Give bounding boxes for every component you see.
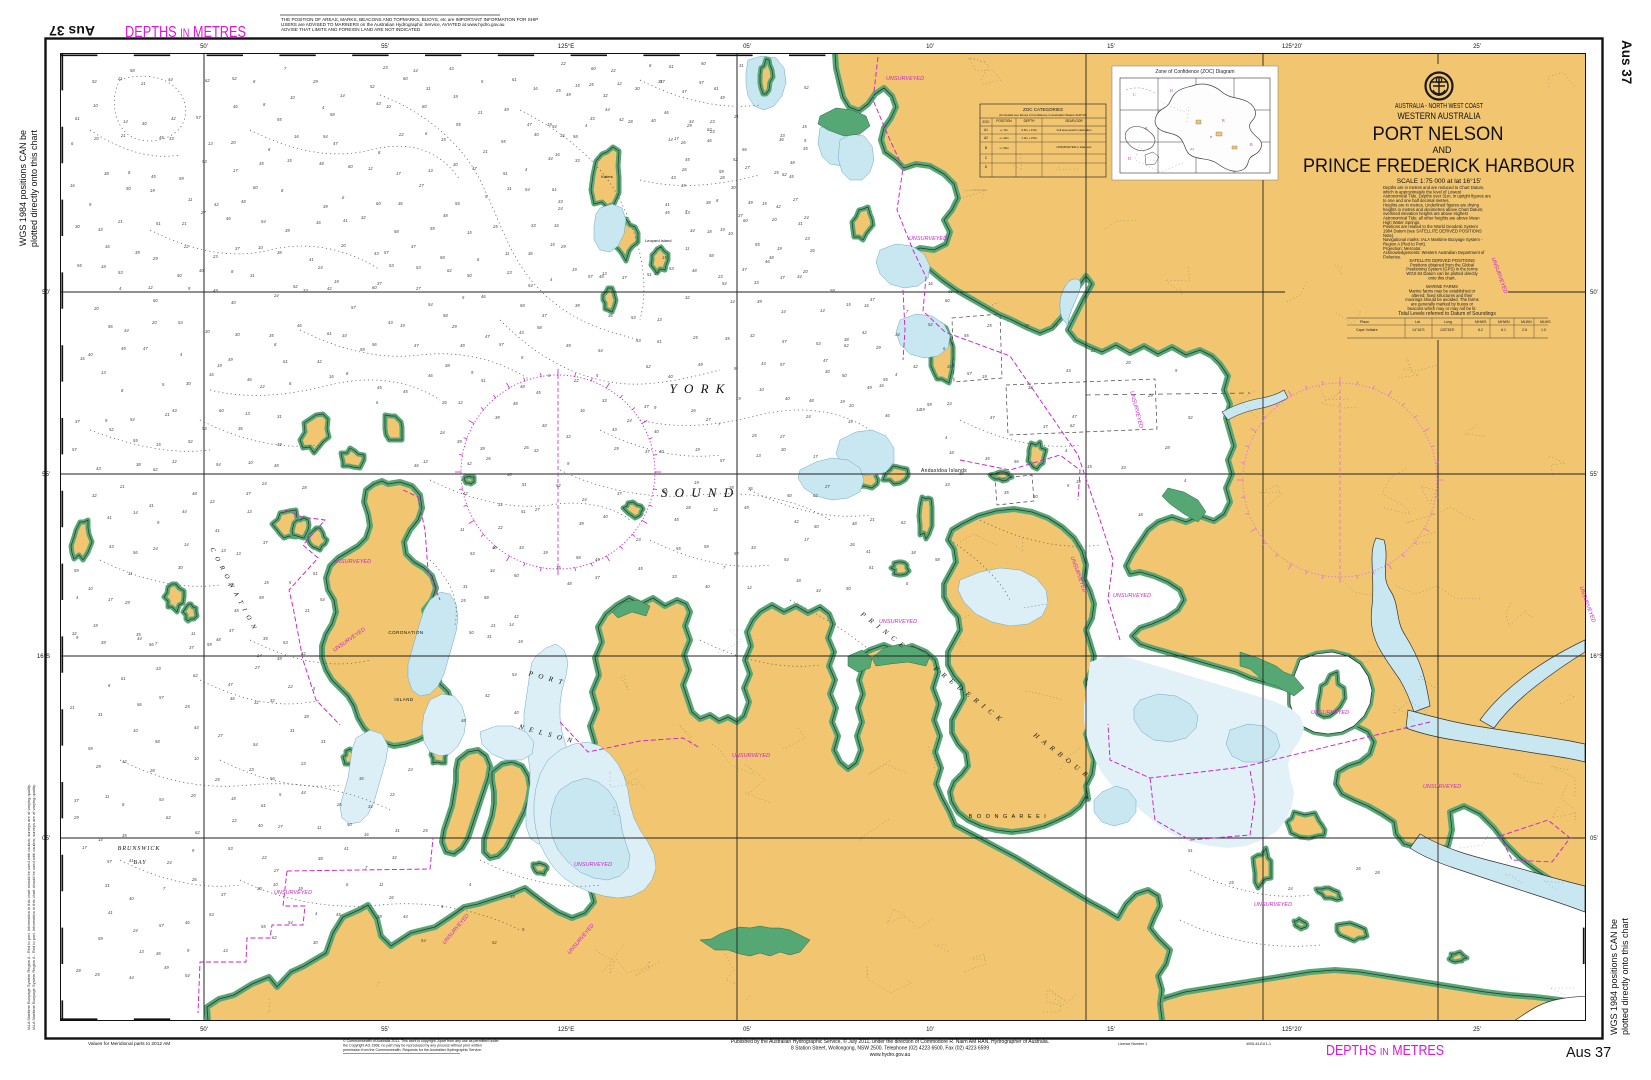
svg-text:38: 38	[1028, 385, 1033, 390]
svg-text:2.6: 2.6	[1522, 328, 1527, 332]
svg-text:46: 46	[226, 216, 231, 221]
svg-text:Aus 37: Aus 37	[1566, 1045, 1611, 1061]
svg-text:19: 19	[572, 267, 577, 272]
svg-text:22: 22	[560, 61, 566, 66]
svg-text:50: 50	[514, 573, 519, 578]
svg-text:1984 Datum (see SATELLITE DERI: 1984 Datum (see SATELLITE DERIVED POSITI…	[1383, 229, 1482, 234]
svg-text:11: 11	[188, 197, 192, 202]
svg-text:57: 57	[780, 362, 785, 367]
svg-text:22: 22	[259, 384, 265, 389]
svg-text:23: 23	[635, 537, 641, 542]
svg-text:20: 20	[151, 320, 157, 325]
svg-text:A2: A2	[1190, 147, 1195, 151]
svg-text:15: 15	[156, 442, 161, 447]
svg-text:50: 50	[347, 822, 352, 827]
svg-text:UNSURVEYED: UNSURVEYED	[1254, 902, 1292, 908]
svg-text:52: 52	[92, 79, 97, 84]
svg-text:34: 34	[124, 328, 129, 333]
svg-text:28: 28	[1374, 870, 1380, 875]
svg-text:13: 13	[223, 948, 228, 953]
svg-text:UNSURVEYED: UNSURVEYED	[886, 76, 924, 82]
svg-text:56: 56	[137, 702, 142, 707]
svg-text:58: 58	[130, 68, 135, 73]
svg-text:38: 38	[445, 363, 450, 368]
svg-text:50': 50'	[1590, 290, 1598, 296]
svg-text:12: 12	[172, 459, 177, 464]
svg-text:54: 54	[130, 417, 135, 422]
svg-text:30: 30	[186, 381, 191, 386]
svg-text:33: 33	[156, 666, 161, 671]
svg-text:16: 16	[580, 408, 585, 413]
svg-text:ADVISE THAT LIMITS AND FOREIGN: ADVISE THAT LIMITS AND FOREIGN LAND ARE …	[281, 27, 421, 32]
svg-text:46: 46	[481, 294, 486, 299]
svg-text:05': 05'	[42, 836, 50, 842]
svg-text:31: 31	[739, 63, 744, 68]
svg-text:1.0: 1.0	[1541, 328, 1546, 332]
svg-text:62: 62	[153, 467, 158, 472]
svg-text:46: 46	[247, 377, 252, 382]
svg-text:24: 24	[132, 928, 138, 933]
svg-text:46: 46	[233, 104, 238, 109]
svg-text:27: 27	[824, 484, 830, 489]
svg-text:D: D	[1128, 156, 1131, 161]
svg-text:17: 17	[396, 171, 401, 176]
svg-text:58: 58	[484, 595, 489, 600]
svg-text:54: 54	[512, 672, 517, 677]
svg-text:49: 49	[744, 505, 749, 510]
svg-text:18: 18	[949, 450, 954, 455]
svg-text:12: 12	[458, 400, 463, 405]
svg-text:13: 13	[1076, 479, 1081, 484]
svg-text:22: 22	[398, 132, 404, 137]
svg-text:Zone of Confidence (ZOC) Diagr: Zone of Confidence (ZOC) Diagram	[1155, 69, 1234, 75]
svg-text:38: 38	[136, 462, 141, 467]
svg-text:B: B	[1250, 142, 1253, 147]
svg-text:41: 41	[215, 528, 220, 533]
svg-text:32: 32	[392, 855, 397, 860]
svg-text:54: 54	[784, 557, 789, 562]
svg-text:47: 47	[542, 313, 547, 318]
svg-text:24: 24	[439, 430, 445, 435]
svg-text:27: 27	[744, 165, 750, 170]
svg-text:15': 15'	[1107, 1027, 1115, 1033]
svg-text:62: 62	[1070, 423, 1075, 428]
svg-text:54: 54	[722, 281, 727, 286]
svg-text:31: 31	[463, 584, 468, 589]
svg-text:14: 14	[133, 510, 138, 515]
svg-text:16: 16	[560, 133, 565, 138]
svg-text:25': 25'	[1473, 1027, 1481, 1033]
svg-text:22: 22	[573, 378, 579, 383]
svg-text:26: 26	[690, 408, 696, 413]
svg-text:19: 19	[694, 480, 699, 485]
svg-text:15: 15	[846, 302, 851, 307]
svg-text:19: 19	[453, 94, 458, 99]
svg-text:36: 36	[359, 776, 364, 781]
svg-text:16: 16	[555, 152, 560, 157]
svg-text:53: 53	[816, 341, 821, 346]
svg-text:32: 32	[603, 93, 608, 98]
svg-text:62: 62	[646, 364, 651, 369]
svg-text:24: 24	[803, 215, 809, 220]
svg-text:34: 34	[548, 156, 553, 161]
svg-text:50: 50	[842, 373, 847, 378]
svg-text:18: 18	[1138, 512, 1143, 517]
svg-text:BAY: BAY	[133, 860, 146, 866]
svg-text:58: 58	[155, 739, 160, 744]
svg-text:32: 32	[361, 215, 366, 220]
svg-text:55: 55	[261, 924, 266, 929]
svg-text:50': 50'	[200, 44, 208, 50]
svg-text:18: 18	[231, 796, 236, 801]
svg-text:MHWN: MHWN	[1498, 320, 1510, 324]
svg-text:47: 47	[485, 334, 490, 339]
svg-text:60: 60	[376, 201, 381, 206]
svg-text:29: 29	[312, 79, 318, 84]
svg-text:15: 15	[467, 230, 472, 235]
svg-text:59: 59	[88, 746, 93, 751]
svg-text:15: 15	[762, 201, 767, 206]
svg-text:20: 20	[1125, 360, 1131, 365]
svg-text:43: 43	[671, 175, 676, 180]
svg-text:31: 31	[149, 503, 154, 508]
svg-text:+/- 20m: +/- 20m	[999, 136, 1009, 140]
svg-text:52: 52	[733, 157, 738, 162]
svg-text:62: 62	[166, 815, 171, 820]
svg-text:43: 43	[761, 361, 766, 366]
svg-text:27: 27	[415, 286, 421, 291]
svg-text:17: 17	[82, 845, 87, 850]
svg-text:50': 50'	[42, 290, 50, 296]
svg-text:05': 05'	[743, 44, 751, 50]
svg-text:62: 62	[193, 673, 198, 678]
svg-text:48: 48	[319, 161, 324, 166]
svg-text:14: 14	[184, 542, 189, 547]
svg-text:39: 39	[959, 471, 964, 476]
svg-text:27: 27	[534, 507, 540, 512]
svg-text:16: 16	[533, 86, 538, 91]
svg-text:26: 26	[680, 140, 686, 145]
svg-text:37: 37	[622, 275, 627, 280]
svg-text:52: 52	[734, 551, 739, 556]
svg-text:52: 52	[370, 84, 375, 89]
svg-text:53: 53	[118, 270, 123, 275]
svg-text:© Commonwealth of Australia 20: © Commonwealth of Australia 2011. This w…	[343, 1039, 500, 1043]
svg-text:42: 42	[514, 614, 519, 619]
svg-text:46: 46	[230, 696, 235, 701]
svg-text:61: 61	[283, 359, 288, 364]
svg-text:41: 41	[665, 202, 670, 207]
svg-text:47: 47	[229, 628, 234, 633]
svg-text:UNSURVEYED: UNSURVEYED	[333, 559, 371, 565]
svg-text:61: 61	[121, 676, 126, 681]
svg-text:43: 43	[374, 251, 379, 256]
svg-text:26: 26	[485, 456, 491, 461]
svg-text:05': 05'	[1590, 836, 1598, 842]
svg-text:56: 56	[133, 550, 138, 555]
svg-text:19: 19	[400, 323, 405, 328]
svg-text:59: 59	[927, 402, 932, 407]
svg-text:45: 45	[234, 608, 239, 613]
svg-text:30: 30	[205, 329, 210, 334]
svg-text:60: 60	[219, 408, 224, 413]
svg-text:38: 38	[729, 485, 734, 490]
svg-text:47: 47	[414, 343, 419, 348]
svg-text:55: 55	[676, 546, 681, 551]
svg-text:20: 20	[190, 793, 196, 798]
svg-text:onto this chart.: onto this chart.	[1428, 275, 1455, 280]
svg-text:45: 45	[159, 135, 164, 140]
svg-text:37: 37	[246, 491, 251, 496]
svg-text:33: 33	[754, 280, 759, 285]
svg-text:40: 40	[785, 396, 790, 401]
svg-text:15: 15	[662, 255, 667, 260]
svg-text:17: 17	[813, 454, 818, 459]
svg-text:20: 20	[802, 269, 808, 274]
svg-text:+/- 5m: +/- 5m	[1000, 128, 1009, 132]
svg-text:25: 25	[773, 170, 779, 175]
svg-text:29: 29	[1147, 393, 1153, 398]
svg-text:19: 19	[736, 396, 741, 401]
svg-text:38: 38	[318, 856, 323, 861]
svg-text:17: 17	[804, 537, 809, 542]
svg-text:52: 52	[556, 483, 561, 488]
svg-text:29: 29	[152, 256, 158, 261]
svg-text:37: 37	[1043, 424, 1048, 429]
svg-text:58: 58	[440, 255, 445, 260]
svg-text:16: 16	[879, 383, 884, 388]
svg-text:28: 28	[301, 485, 307, 490]
svg-text:125°20': 125°20'	[1282, 44, 1302, 50]
svg-text:54: 54	[320, 597, 325, 602]
svg-text:24: 24	[946, 401, 952, 406]
svg-text:23: 23	[212, 254, 218, 259]
svg-text:47: 47	[742, 267, 747, 272]
svg-text:46: 46	[765, 259, 770, 264]
svg-text:20: 20	[227, 582, 233, 587]
svg-text:B: B	[1145, 126, 1148, 131]
svg-text:26: 26	[809, 248, 815, 253]
svg-text:43: 43	[519, 330, 524, 335]
svg-text:19: 19	[720, 227, 725, 232]
svg-text:10: 10	[386, 104, 391, 109]
svg-text:Lat: Lat	[1415, 320, 1420, 324]
svg-text:10: 10	[759, 387, 764, 392]
svg-text:60: 60	[372, 285, 377, 290]
svg-text:15: 15	[556, 565, 561, 570]
svg-text:14°16'S: 14°16'S	[1412, 328, 1425, 332]
svg-text:36: 36	[398, 201, 403, 206]
svg-text:16: 16	[70, 183, 75, 188]
svg-text:48: 48	[769, 255, 774, 260]
svg-text:49: 49	[867, 385, 872, 390]
svg-text:60: 60	[422, 104, 427, 109]
svg-text:48: 48	[513, 401, 518, 406]
svg-text:43: 43	[1066, 368, 1071, 373]
svg-text:54: 54	[216, 462, 221, 467]
svg-text:41: 41	[309, 257, 314, 262]
svg-text:13: 13	[428, 168, 433, 173]
svg-text:37: 37	[645, 449, 650, 454]
svg-text:49: 49	[277, 442, 282, 447]
svg-text:38: 38	[104, 171, 109, 176]
svg-text:21: 21	[490, 623, 496, 628]
svg-text:59: 59	[360, 347, 365, 352]
svg-text:54: 54	[253, 742, 258, 747]
svg-text:61: 61	[75, 116, 80, 121]
svg-text:47: 47	[143, 346, 148, 351]
svg-text:55: 55	[77, 263, 82, 268]
svg-text:55': 55'	[381, 44, 389, 50]
svg-text:20: 20	[340, 243, 346, 248]
svg-text:36: 36	[238, 426, 243, 431]
svg-text:26: 26	[523, 445, 529, 450]
svg-text:SCALE 1:75 000 at lat 16°15': SCALE 1:75 000 at lat 16°15'	[1397, 177, 1481, 185]
svg-text:25: 25	[751, 433, 757, 438]
svg-text:47: 47	[990, 415, 995, 420]
svg-text:62: 62	[195, 830, 200, 835]
svg-text:39: 39	[757, 299, 762, 304]
svg-text:47: 47	[682, 89, 687, 94]
svg-text:21: 21	[482, 149, 488, 154]
svg-text:54: 54	[159, 797, 164, 802]
svg-text:www.hydro.gov.au: www.hydro.gov.au	[870, 1052, 911, 1058]
svg-text:28: 28	[149, 768, 155, 773]
svg-text:19: 19	[217, 363, 222, 368]
svg-text:42: 42	[794, 519, 799, 524]
svg-text:40: 40	[199, 268, 204, 273]
svg-text:34: 34	[797, 274, 802, 279]
svg-text:52: 52	[928, 322, 933, 327]
svg-text:42: 42	[317, 359, 322, 364]
svg-text:21: 21	[164, 412, 170, 417]
svg-text:32: 32	[685, 295, 690, 300]
svg-text:24: 24	[805, 414, 811, 419]
svg-text:36: 36	[528, 251, 533, 256]
svg-text:62: 62	[782, 172, 787, 177]
svg-text:57: 57	[660, 79, 665, 84]
svg-text:32: 32	[301, 651, 306, 656]
svg-text:Tidal Levels referred to Datum: Tidal Levels referred to Datum of Soundi…	[1398, 311, 1496, 317]
svg-text:32: 32	[566, 434, 571, 439]
svg-text:A1: A1	[984, 128, 988, 132]
svg-text:35: 35	[947, 364, 952, 369]
svg-text:19: 19	[150, 188, 155, 193]
svg-text:30: 30	[75, 224, 80, 229]
svg-text:25: 25	[588, 82, 594, 87]
svg-text:10: 10	[194, 756, 199, 761]
svg-text:49: 49	[228, 357, 233, 362]
svg-text:33: 33	[1121, 465, 1126, 470]
svg-text:61: 61	[327, 331, 332, 336]
svg-text:10: 10	[273, 882, 278, 887]
svg-text:45: 45	[336, 912, 341, 917]
svg-text:42: 42	[467, 461, 472, 466]
svg-text:62: 62	[272, 935, 277, 940]
svg-text:33: 33	[531, 223, 536, 228]
svg-text:27: 27	[254, 665, 260, 670]
svg-text:42: 42	[122, 759, 127, 764]
svg-text:27: 27	[217, 733, 223, 738]
svg-text:50: 50	[126, 186, 131, 191]
svg-text:19: 19	[777, 246, 782, 251]
svg-text:55: 55	[277, 117, 282, 122]
svg-text:Aus 37: Aus 37	[49, 23, 95, 39]
svg-text:10': 10'	[926, 44, 934, 50]
svg-text:48: 48	[274, 463, 279, 468]
svg-text:33: 33	[169, 136, 174, 141]
svg-text:25: 25	[94, 972, 100, 977]
svg-text:20: 20	[230, 140, 236, 145]
svg-text:27: 27	[792, 197, 798, 202]
svg-text:12: 12	[747, 585, 752, 590]
svg-text:16: 16	[864, 303, 869, 308]
svg-text:125°35'E: 125°35'E	[1440, 328, 1455, 332]
svg-text:13: 13	[657, 317, 662, 322]
svg-text:54: 54	[261, 219, 266, 224]
svg-text:AND: AND	[1432, 145, 1452, 155]
svg-text:DEPTH: DEPTH	[1024, 119, 1036, 123]
svg-text:CORONATION: CORONATION	[388, 630, 423, 635]
svg-text:53: 53	[416, 265, 421, 270]
svg-text:40: 40	[492, 545, 497, 550]
svg-text:57: 57	[351, 305, 356, 310]
svg-text:15: 15	[441, 137, 446, 142]
svg-text:B: B	[985, 146, 987, 150]
svg-text:44: 44	[168, 77, 173, 82]
svg-text:55: 55	[455, 201, 460, 206]
svg-text:10: 10	[93, 103, 98, 108]
svg-text:58: 58	[394, 229, 399, 234]
svg-text:11: 11	[128, 571, 132, 576]
svg-text:37: 37	[377, 281, 382, 286]
svg-text:59: 59	[74, 568, 79, 573]
svg-text:59: 59	[98, 936, 103, 941]
svg-text:40: 40	[651, 118, 656, 123]
svg-text:48: 48	[241, 199, 246, 204]
svg-text:59: 59	[719, 169, 724, 174]
svg-text:12: 12	[617, 81, 622, 86]
svg-text:38: 38	[706, 200, 711, 205]
svg-text:23: 23	[382, 65, 388, 70]
svg-text:34: 34	[342, 333, 347, 338]
svg-text:18: 18	[101, 264, 106, 269]
svg-text:14: 14	[340, 93, 345, 98]
svg-text:62: 62	[901, 520, 906, 525]
svg-text:54: 54	[598, 348, 603, 353]
svg-text:55: 55	[501, 139, 506, 144]
svg-text:44: 44	[194, 725, 199, 730]
svg-text:WESTERN AUSTRALIA: WESTERN AUSTRALIA	[1398, 111, 1481, 121]
svg-text:12: 12	[148, 285, 153, 290]
svg-text:27: 27	[779, 434, 785, 439]
svg-text:IALA Maritime Buoyage System R: IALA Maritime Buoyage System Region A - …	[31, 784, 36, 1030]
svg-text:23: 23	[248, 767, 254, 772]
svg-text:57: 57	[107, 859, 112, 864]
svg-text:57: 57	[699, 80, 704, 85]
svg-text:50: 50	[701, 61, 706, 66]
svg-text:61: 61	[512, 77, 517, 82]
svg-text:40: 40	[231, 300, 236, 305]
svg-text:48: 48	[692, 268, 697, 273]
svg-text:46: 46	[297, 323, 302, 328]
svg-text:50: 50	[814, 524, 819, 529]
svg-text:30: 30	[635, 86, 640, 91]
svg-text:31: 31	[250, 273, 255, 278]
svg-text:20: 20	[93, 306, 99, 311]
svg-text:39: 39	[135, 250, 140, 255]
svg-text:42: 42	[862, 330, 867, 335]
